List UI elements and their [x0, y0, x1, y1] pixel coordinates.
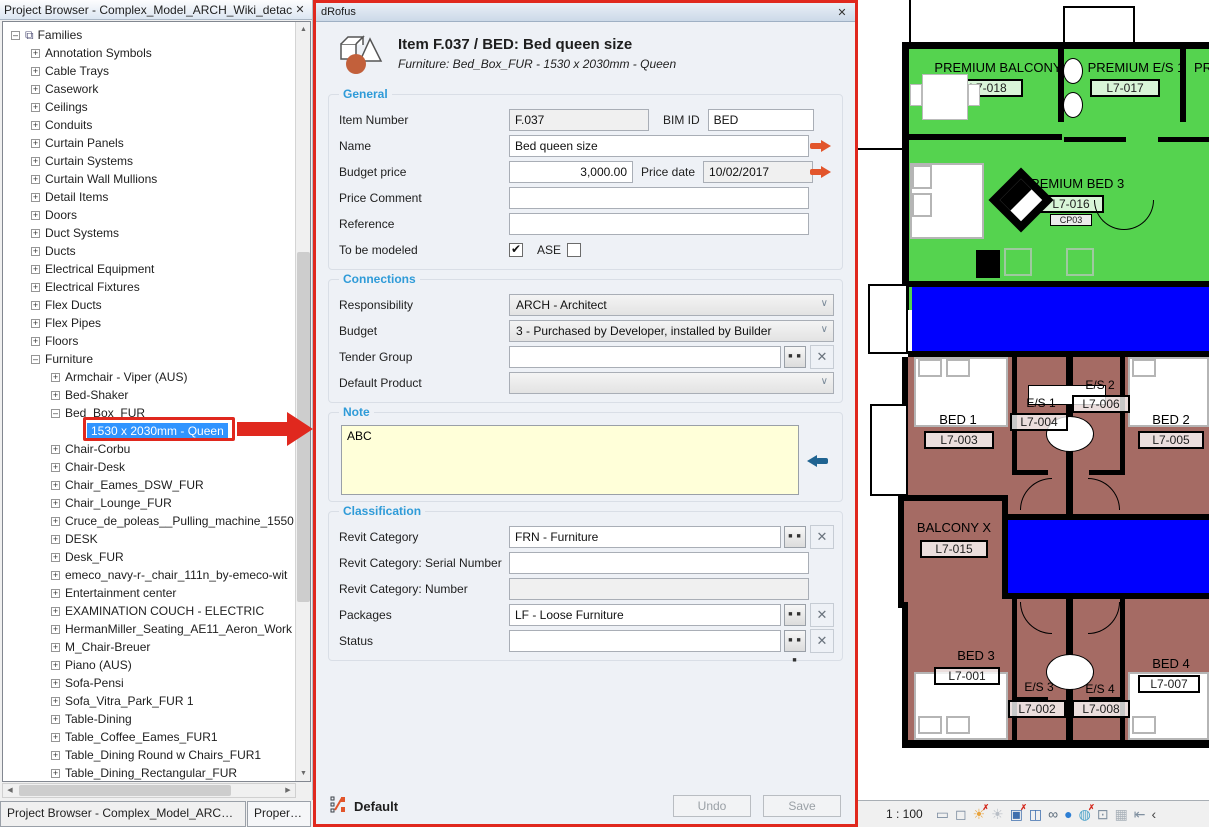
tree-item-label: Sofa_Vitra_Park_FUR 1 — [65, 694, 194, 708]
group-connections: Connections Responsibility ARCH - Archit… — [328, 279, 843, 403]
pull-from-revit-arrow-icon[interactable] — [806, 455, 828, 467]
status-label: Status — [339, 634, 509, 648]
room-label-bed3: BED 3 — [938, 648, 1014, 663]
room-tag-balcony-x[interactable]: L7-015 — [920, 540, 988, 558]
tree-item[interactable]: +Electrical Fixtures — [3, 278, 295, 296]
tree-item-label: EXAMINATION COUCH - ELECTRIC — [65, 604, 264, 618]
tree-item-label: M_Chair-Breuer — [65, 640, 150, 654]
room-tag-bed1[interactable]: L7-003 — [924, 431, 994, 449]
tree-item-label: Cruce_de_poleas__Pulling_machine_1550 — [65, 514, 294, 528]
item-number-field[interactable] — [509, 109, 649, 131]
tree-item-label: Electrical Equipment — [45, 262, 154, 276]
room-label-bed2: BED 2 — [1136, 412, 1206, 427]
tree-item[interactable]: +Doors — [3, 206, 295, 224]
sun-path-icon[interactable]: ☀✗ — [973, 807, 986, 821]
item-header: Item F.037 / BED: Bed queen size Furnitu… — [316, 22, 855, 85]
expand-plus-icon[interactable]: + — [31, 121, 40, 130]
tree-item-label: Desk_FUR — [65, 550, 124, 564]
group-classification-label: Classification — [339, 504, 425, 518]
name-label: Name — [339, 139, 509, 153]
chevron-down-icon: ∨ — [821, 376, 828, 387]
tree-item[interactable]: +Casework — [3, 80, 295, 98]
tree-item-label: Casework — [45, 82, 98, 96]
tree-item[interactable]: +Electrical Equipment — [3, 260, 295, 278]
group-connections-label: Connections — [339, 272, 420, 286]
price-comment-label: Price Comment — [339, 191, 509, 205]
expand-plus-icon[interactable]: + — [31, 301, 40, 310]
tree-item[interactable]: +Table-Dining — [3, 710, 295, 728]
tree-item-label: emeco_navy-r-_chair_111n_by-emeco-wit — [65, 568, 287, 582]
group-note-label: Note — [339, 405, 374, 419]
expand-plus-icon[interactable]: + — [51, 697, 60, 706]
annotation-arrow — [237, 412, 313, 446]
revit-category-serial-label: Revit Category: Serial Number — [339, 556, 509, 570]
group-classification: Classification Revit Category ■ ■ ■ ✕ Re… — [328, 511, 843, 661]
drofus-close-icon[interactable]: ✕ — [834, 6, 850, 19]
room-tag-premium-es1[interactable]: L7-017 — [1090, 79, 1160, 97]
collapse-minus-icon[interactable]: – — [11, 31, 20, 40]
tree-item-label: Ducts — [45, 244, 76, 258]
tree-item-label: Bed-Shaker — [65, 388, 128, 402]
revit-category-number-label: Revit Category: Number — [339, 582, 509, 596]
expand-plus-icon[interactable]: + — [51, 535, 60, 544]
push-to-revit-arrow-icon[interactable] — [810, 140, 832, 152]
ase-label: ASE — [537, 243, 561, 257]
budget-price-label: Budget price — [339, 165, 509, 179]
budget-label: Budget — [339, 324, 509, 338]
expand-plus-icon[interactable]: + — [51, 733, 60, 742]
expand-plus-icon[interactable]: + — [51, 625, 60, 634]
room-label-premium-es1: PREMIUM E/S 1 — [1066, 60, 1206, 75]
tree-item[interactable]: +Sofa-Pensi — [3, 674, 295, 692]
expand-plus-icon[interactable]: + — [31, 337, 40, 346]
wc-symbol — [1063, 92, 1083, 118]
tree-item-label: Armchair - Viper (AUS) — [65, 370, 187, 384]
tree-item-label: Duct Systems — [45, 226, 119, 240]
tree-item-label: Conduits — [45, 118, 92, 132]
room-label-bed1: BED 1 — [918, 412, 998, 427]
tree-item[interactable]: +Table_Dining_Rectangular_FUR — [3, 764, 295, 781]
tree-item[interactable]: +Bed-Shaker — [3, 386, 295, 404]
tree-item[interactable]: +DESK — [3, 530, 295, 548]
default-product-select[interactable]: ∨ — [509, 372, 834, 394]
tree-item[interactable]: +Armchair - Viper (AUS) — [3, 368, 295, 386]
drofus-dialog: dRofus ✕ Item F.037 / BED: Bed queen siz… — [313, 0, 858, 827]
status-field[interactable] — [509, 630, 781, 652]
price-date-field[interactable] — [703, 161, 813, 183]
room-label-es4: E/S 4 — [1074, 682, 1126, 696]
bim-id-field[interactable] — [708, 109, 814, 131]
expand-plus-icon[interactable]: + — [31, 139, 40, 148]
drofus-window-title: dRofus — [321, 6, 834, 18]
temporary-view-properties-icon[interactable]: ⊡ — [1097, 807, 1109, 821]
budget-price-field[interactable] — [509, 161, 633, 183]
chevron-down-icon: ∨ — [821, 298, 828, 309]
save-button[interactable]: Save — [763, 795, 841, 817]
expand-plus-icon[interactable]: + — [51, 643, 60, 652]
control-tag-cp03[interactable]: CP03 — [1050, 214, 1092, 226]
chair-symbol — [1004, 248, 1032, 276]
project-browser-title: Project Browser - Complex_Model_ARCH_Wik… — [4, 3, 292, 17]
panel-tab-bar: Project Browser - Complex_Model_ARCH_Wi.… — [0, 800, 313, 827]
browse-ellipsis-button[interactable]: ■ ■ ■ — [784, 526, 806, 548]
tree-item-label: Furniture — [45, 352, 93, 366]
tree-item-label: DESK — [65, 532, 98, 546]
tree-item[interactable]: +Duct Systems — [3, 224, 295, 242]
chevron-down-icon: ∨ — [821, 324, 828, 335]
clear-x-button[interactable]: ✕ — [810, 629, 834, 653]
analytical-model-icon[interactable]: ▦ — [1115, 807, 1128, 821]
expand-plus-icon[interactable]: + — [31, 67, 40, 76]
table-symbol — [922, 74, 968, 120]
tab-properties[interactable]: Properties — [247, 801, 311, 827]
view-control-bar: 1 : 100 ▭◻☀✗☀▣✗◫∞●◍✗⊡▦⇤‹ — [858, 800, 1209, 827]
item-title: Item F.037 / BED: Bed queen size — [398, 36, 676, 53]
tree-item-label: Curtain Panels — [45, 136, 124, 150]
scroll-down-icon[interactable]: ▼ — [296, 766, 311, 781]
families-tree: –⧉Families+Annotation Symbols+Cable Tray… — [2, 21, 311, 782]
clear-x-button[interactable]: ✕ — [810, 345, 834, 369]
tree-item[interactable]: +Ducts — [3, 242, 295, 260]
packages-field[interactable] — [509, 604, 781, 626]
bim-id-label: BIM ID — [663, 113, 700, 127]
expand-plus-icon[interactable]: + — [31, 283, 40, 292]
browse-ellipsis-button[interactable]: ■ ■ ■ — [784, 604, 806, 626]
group-general-label: General — [339, 87, 392, 101]
room-tag-bed2[interactable]: L7-005 — [1138, 431, 1204, 449]
tree-item[interactable]: +Flex Pipes — [3, 314, 295, 332]
horizontal-scrollbar[interactable]: ◀ ▶ — [2, 783, 296, 798]
room-label-balcony-x: BALCONY X — [906, 520, 1002, 535]
expand-plus-icon[interactable]: + — [31, 85, 40, 94]
tree-item-label: Entertainment center — [65, 586, 176, 600]
tree-item-label: Chair-Corbu — [65, 442, 130, 456]
tender-group-field[interactable] — [509, 346, 781, 368]
reference-label: Reference — [339, 217, 509, 231]
profile-name: Default — [354, 799, 398, 814]
scroll-up-icon[interactable]: ▲ — [296, 22, 311, 37]
horizontal-scroll-thumb[interactable] — [19, 785, 231, 796]
item-type-icon — [336, 34, 384, 79]
room-tag-es2[interactable]: L7-006 — [1072, 395, 1130, 413]
tree-item[interactable]: +Curtain Wall Mullions — [3, 170, 295, 188]
tree-item-label: Curtain Systems — [45, 154, 133, 168]
expand-plus-icon[interactable]: + — [31, 103, 40, 112]
corridor-upper[interactable] — [912, 287, 1209, 351]
expand-plus-icon[interactable]: + — [51, 481, 60, 490]
budget-select[interactable]: 3 - Purchased by Developer, installed by… — [509, 320, 834, 342]
tree-item-label: Floors — [45, 334, 78, 348]
shadows-icon[interactable]: ☀ — [991, 807, 1004, 821]
tab-project-browser[interactable]: Project Browser - Complex_Model_ARCH_Wi.… — [0, 801, 246, 827]
reveal-constraints-icon[interactable]: ⇤ — [1134, 807, 1146, 821]
tree-item-label: Chair_Lounge_FUR — [65, 496, 172, 510]
tree-item[interactable]: +emeco_navy-r-_chair_111n_by-emeco-wit — [3, 566, 295, 584]
dialog-footer: Default Undo Save — [316, 788, 855, 824]
expand-plus-icon[interactable]: + — [51, 679, 60, 688]
tree-item[interactable]: –Furniture — [3, 350, 295, 368]
price-date-label: Price date — [641, 165, 695, 179]
tender-group-label: Tender Group — [339, 350, 509, 364]
scroll-left-icon[interactable]: ◀ — [3, 784, 17, 797]
group-general: General Item Number BIM ID Name Budget p… — [328, 94, 843, 270]
expand-plus-icon[interactable]: + — [51, 391, 60, 400]
expand-plus-icon[interactable]: + — [31, 265, 40, 274]
item-subtitle: Furniture: Bed_Box_FUR - 1530 x 2030mm -… — [398, 57, 676, 71]
crop-view-icon[interactable]: ▣✗ — [1010, 807, 1023, 821]
tree-item[interactable]: +Conduits — [3, 116, 295, 134]
to-be-modeled-label: To be modeled — [339, 243, 509, 257]
tree-item[interactable]: +Table_Coffee_Eames_FUR1 — [3, 728, 295, 746]
expand-plus-icon[interactable]: + — [51, 751, 60, 760]
tree-item-label: Families — [38, 28, 83, 42]
tree-item[interactable]: –⧉Families — [3, 26, 295, 44]
collapse-chevron-icon[interactable]: ‹ — [1152, 807, 1157, 821]
tree-item-label: Table_Dining Round w Chairs_FUR1 — [65, 748, 261, 762]
tree-item[interactable]: +Ceilings — [3, 98, 295, 116]
room-tag-es4[interactable]: L7-008 — [1072, 700, 1130, 718]
note-textarea[interactable] — [341, 425, 799, 495]
item-number-label: Item Number — [339, 113, 509, 127]
chair-symbol — [968, 84, 980, 106]
reveal-hidden-elements-icon[interactable]: ● — [1064, 807, 1072, 821]
tree-item[interactable]: +Floors — [3, 332, 295, 350]
expand-plus-icon[interactable]: + — [51, 769, 60, 778]
tree-item-label: HermanMiller_Seating_AE11_Aeron_Work — [65, 622, 292, 636]
expand-plus-icon[interactable]: + — [31, 229, 40, 238]
expand-plus-icon[interactable]: + — [31, 193, 40, 202]
room-tag-bed3[interactable]: L7-001 — [934, 667, 1000, 685]
tree-item[interactable]: +Curtain Panels — [3, 134, 295, 152]
tree-item-label: Bed_Box_FUR — [65, 406, 145, 420]
room-label-partial-right: PR — [1194, 60, 1209, 75]
tree-item[interactable]: +Cable Trays — [3, 62, 295, 80]
room-label-bed4: BED 4 — [1138, 656, 1204, 671]
tree-item-label: Table-Dining — [65, 712, 132, 726]
tree-item[interactable]: +Piano (AUS) — [3, 656, 295, 674]
tree-scroll-area: –⧉Families+Annotation Symbols+Cable Tray… — [3, 22, 295, 781]
scroll-right-icon[interactable]: ▶ — [281, 784, 295, 797]
show-crop-region-icon[interactable]: ◫ — [1029, 807, 1042, 821]
collapse-minus-icon[interactable]: – — [51, 409, 60, 418]
expand-plus-icon[interactable]: + — [31, 319, 40, 328]
floor-plan-view[interactable]: PREMIUM BALCONY L7-018 PREMIUM E/S 1 L7-… — [858, 0, 1209, 800]
tree-item[interactable]: +Entertainment center — [3, 584, 295, 602]
clear-x-button[interactable]: ✕ — [810, 603, 834, 627]
push-to-revit-arrow-icon[interactable] — [810, 166, 832, 178]
tree-item-label: Chair-Desk — [65, 460, 125, 474]
expand-plus-icon[interactable]: + — [51, 715, 60, 724]
tree-item[interactable]: +M_Chair-Breuer — [3, 638, 295, 656]
expand-plus-icon[interactable]: + — [51, 661, 60, 670]
tree-item[interactable]: +Chair-Desk — [3, 458, 295, 476]
expand-plus-icon[interactable]: + — [51, 571, 60, 580]
wc-symbol — [1063, 58, 1083, 84]
worksharing-display-icon[interactable]: ◍✗ — [1079, 807, 1091, 821]
expand-plus-icon[interactable]: + — [51, 373, 60, 382]
tree-item-label: Table_Dining_Rectangular_FUR — [65, 766, 237, 780]
name-field[interactable] — [509, 135, 809, 157]
tree-item[interactable]: +HermanMiller_Seating_AE11_Aeron_Work — [3, 620, 295, 638]
room-label-premium-balcony: PREMIUM BALCONY — [913, 60, 1083, 75]
tree-item[interactable]: +Table_Dining Round w Chairs_FUR1 — [3, 746, 295, 764]
to-be-modeled-checkbox[interactable] — [509, 243, 523, 257]
revit-category-serial-field[interactable] — [509, 552, 809, 574]
expand-plus-icon[interactable]: + — [51, 445, 60, 454]
tree-item-label: 1530 x 2030mm - Queen — [87, 423, 228, 439]
tree-item[interactable]: +Chair_Eames_DSW_FUR — [3, 476, 295, 494]
room-tag-bed4[interactable]: L7-007 — [1138, 675, 1200, 693]
window-bay — [868, 284, 908, 354]
chair-symbol — [1066, 248, 1094, 276]
expand-plus-icon[interactable]: + — [51, 517, 60, 526]
room-tag-es1[interactable]: L7-004 — [1010, 413, 1068, 431]
tree-item[interactable]: +Annotation Symbols — [3, 44, 295, 62]
project-browser-titlebar: Project Browser - Complex_Model_ARCH_Wik… — [0, 0, 312, 20]
expand-plus-icon[interactable]: + — [51, 553, 60, 562]
close-icon[interactable]: ✕ — [292, 3, 308, 16]
tree-item-label: Detail Items — [45, 190, 108, 204]
responsibility-label: Responsibility — [339, 298, 509, 312]
tree-item-label: Electrical Fixtures — [45, 280, 140, 294]
collapse-minus-icon[interactable]: – — [31, 355, 40, 364]
detail-level-icon[interactable]: ▭ — [936, 807, 949, 821]
corridor-lower[interactable] — [1008, 520, 1209, 593]
room-label-es1: E/S 1 — [1016, 396, 1066, 410]
window-bay — [870, 404, 908, 496]
clear-x-button[interactable]: ✕ — [810, 525, 834, 549]
revit-category-number-field[interactable] — [509, 578, 809, 600]
expand-plus-icon[interactable]: + — [31, 49, 40, 58]
upper-balcony-outline — [1063, 6, 1135, 46]
revit-category-field[interactable] — [509, 526, 781, 548]
default-product-label: Default Product — [339, 376, 509, 390]
packages-label: Packages — [339, 608, 509, 622]
tree-item[interactable]: +Detail Items — [3, 188, 295, 206]
tree-item-label: Ceilings — [45, 100, 88, 114]
tree-item-label: Chair_Eames_DSW_FUR — [65, 478, 204, 492]
room-tag-es3[interactable]: L7-002 — [1008, 700, 1066, 718]
tree-item-label: Sofa-Pensi — [65, 676, 124, 690]
tree-item-label: Flex Pipes — [45, 316, 101, 330]
temporary-hide-isolate-icon[interactable]: ∞ — [1048, 807, 1058, 821]
expand-plus-icon[interactable]: + — [51, 607, 60, 616]
group-note: Note — [328, 412, 843, 502]
drofus-titlebar: dRofus ✕ — [316, 3, 855, 22]
visual-style-icon[interactable]: ◻ — [955, 807, 967, 821]
tree-item-label: Doors — [45, 208, 77, 222]
expand-plus-icon[interactable]: + — [51, 463, 60, 472]
price-comment-field[interactable] — [509, 187, 809, 209]
tree-item-label: Curtain Wall Mullions — [45, 172, 157, 186]
tree-item-label: Flex Ducts — [45, 298, 102, 312]
drofus-logo-icon — [330, 796, 346, 816]
ase-checkbox[interactable] — [567, 243, 581, 257]
expand-plus-icon[interactable]: + — [31, 247, 40, 256]
tree-item-label: Annotation Symbols — [45, 46, 152, 60]
revit-category-label: Revit Category — [339, 530, 509, 544]
expand-plus-icon[interactable]: + — [31, 211, 40, 220]
tree-item[interactable]: +Curtain Systems — [3, 152, 295, 170]
tree-item[interactable]: +Cruce_de_poleas__Pulling_machine_1550 — [3, 512, 295, 530]
room-label-es3: E/S 3 — [1014, 680, 1064, 694]
undo-button[interactable]: Undo — [673, 795, 751, 817]
tree-item[interactable]: +Desk_FUR — [3, 548, 295, 566]
tree-item-label: Piano (AUS) — [65, 658, 132, 672]
cabinet-symbol — [976, 250, 1000, 278]
tree-item-label: Cable Trays — [45, 64, 109, 78]
tree-item[interactable]: +Flex Ducts — [3, 296, 295, 314]
tree-item[interactable]: +Sofa_Vitra_Park_FUR 1 — [3, 692, 295, 710]
families-icon: ⧉ — [25, 28, 34, 43]
reference-field[interactable] — [509, 213, 809, 235]
expand-plus-icon[interactable]: + — [31, 157, 40, 166]
tree-item-label: Table_Coffee_Eames_FUR1 — [65, 730, 218, 744]
expand-plus-icon[interactable]: + — [31, 175, 40, 184]
browse-ellipsis-button[interactable]: ■ ■ ■ — [784, 346, 806, 368]
vertical-scrollbar[interactable]: ▲ ▼ — [295, 22, 310, 781]
expand-plus-icon[interactable]: + — [51, 499, 60, 508]
chair-symbol — [910, 84, 922, 106]
scale-control[interactable]: 1 : 100 — [886, 807, 923, 821]
responsibility-select[interactable]: ARCH - Architect∨ — [509, 294, 834, 316]
expand-plus-icon[interactable]: + — [51, 589, 60, 598]
tree-item[interactable]: +Chair_Lounge_FUR — [3, 494, 295, 512]
tree-item[interactable]: +EXAMINATION COUCH - ELECTRIC — [3, 602, 295, 620]
room-label-es2: E/S 2 — [1074, 378, 1126, 392]
browse-ellipsis-button[interactable]: ■ ■ ■ — [784, 630, 806, 652]
